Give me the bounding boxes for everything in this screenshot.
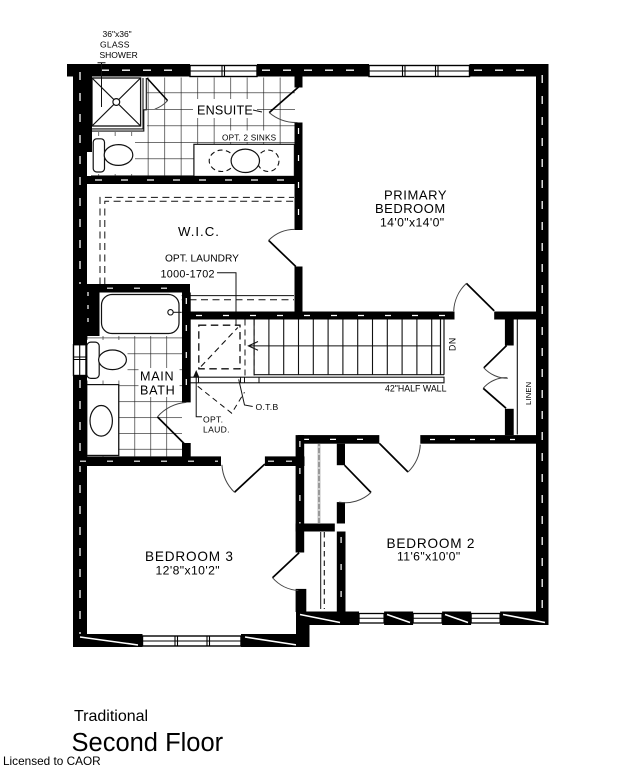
svg-text:ENSUITE: ENSUITE (197, 104, 253, 118)
svg-text:Second Floor: Second Floor (72, 729, 224, 757)
svg-text:BEDROOM: BEDROOM (375, 201, 446, 216)
svg-text:OPT. LAUNDRY: OPT. LAUNDRY (165, 254, 239, 265)
svg-text:42"HALF WALL: 42"HALF WALL (385, 384, 447, 394)
svg-text:Licensed to CAOR: Licensed to CAOR (3, 754, 101, 768)
svg-text:12'8"x10'2": 12'8"x10'2" (156, 564, 220, 578)
svg-text:11'6"x10'0": 11'6"x10'0" (397, 550, 461, 564)
svg-text:BEDROOM 3: BEDROOM 3 (145, 549, 234, 564)
svg-text:SHOWER: SHOWER (100, 50, 138, 60)
svg-text:LAUD.: LAUD. (203, 425, 230, 435)
svg-text:OPT. 2 SINKS: OPT. 2 SINKS (222, 133, 277, 142)
svg-text:O.T.B: O.T.B (256, 402, 279, 412)
svg-text:OPT.: OPT. (203, 415, 223, 425)
svg-text:GLASS: GLASS (100, 40, 130, 50)
svg-text:BATH: BATH (140, 384, 175, 398)
svg-text:36"x36": 36"x36" (103, 29, 132, 39)
svg-text:Traditional: Traditional (74, 708, 148, 725)
svg-text:DN: DN (448, 337, 458, 351)
svg-text:1000-1702: 1000-1702 (161, 269, 215, 281)
svg-text:LINEN: LINEN (524, 382, 533, 405)
svg-text:W.I.C.: W.I.C. (178, 224, 220, 239)
svg-text:MAIN: MAIN (140, 370, 174, 384)
svg-text:14'0"x14'0": 14'0"x14'0" (380, 216, 444, 230)
